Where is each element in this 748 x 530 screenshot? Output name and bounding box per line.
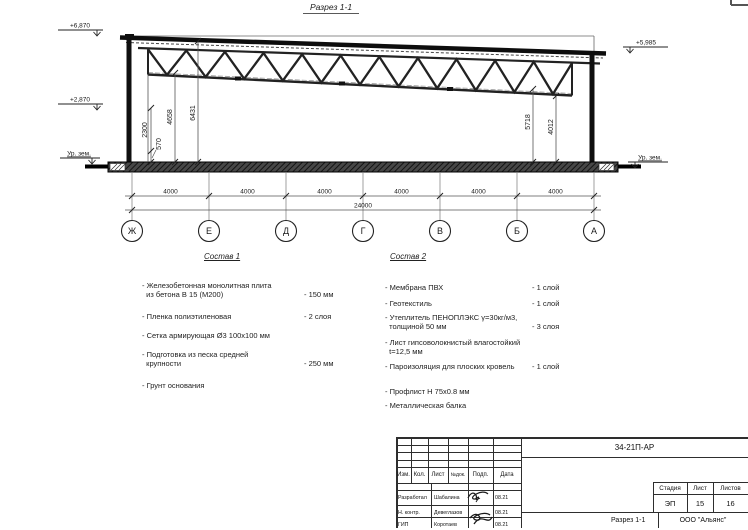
columns (125, 34, 595, 163)
svg-text:+2,870: +2,870 (70, 97, 90, 104)
elevation-left-top: +6,870 (58, 23, 103, 37)
tb-name: Девеглазов (434, 507, 467, 518)
list-item: - Сетка армирующая Ø3 100х100 мм (142, 331, 360, 340)
composition-1-title: Состав 1 (204, 252, 240, 262)
tb-name: Шабалина (434, 492, 467, 503)
tb-col-kol: Кол. (411, 468, 428, 482)
tb-role: ГИП (398, 519, 431, 530)
tb-col-podp: Подп. (468, 468, 493, 482)
elevation-ground-left: Ур. зем. (60, 151, 100, 165)
svg-text:4000: 4000 (394, 189, 409, 196)
tb-drawing-title: Разрез 1-1 (521, 513, 658, 528)
svg-text:2300: 2300 (142, 122, 149, 138)
list-item: - Геотекстиль - 1 слой (385, 299, 575, 308)
list-item: - Железобетонная монолитная плита из бет… (142, 281, 360, 299)
svg-text:Ур. зем.: Ур. зем. (638, 155, 662, 162)
roof-truss (138, 48, 600, 96)
tb-name: Коротаев (434, 519, 467, 530)
column-right (590, 55, 595, 163)
svg-text:6431: 6431 (190, 105, 197, 121)
svg-text:4012: 4012 (548, 119, 555, 135)
tb-date: 08.21 (495, 519, 520, 530)
tb-col-izm: Изм. (396, 468, 411, 482)
list-item: - Лист гипсоволокнистый влагостойкий t=1… (385, 338, 575, 356)
svg-text:А: А (591, 226, 597, 236)
svg-text:Ур. зем.: Ур. зем. (67, 151, 91, 158)
list-item: - Грунт основания (142, 381, 360, 390)
tb-role: Разработал (398, 492, 431, 503)
title-block: Изм. Кол. Лист №док. Подп. Дата Разработ… (396, 437, 748, 528)
section-drawing: Разрез 1-1 (0, 0, 748, 250)
svg-text:Г: Г (361, 226, 366, 236)
total-span-label: 24000 (354, 203, 372, 210)
frame-corner (731, 0, 748, 5)
svg-text:4000: 4000 (317, 189, 332, 196)
list-item: - Профлист Н 75х0.8 мм (385, 387, 575, 396)
svg-text:Д: Д (283, 226, 289, 236)
floor-slab (85, 162, 641, 172)
tb-col-list: Лист (428, 468, 448, 482)
vertical-dims-right: 5718 4012 (525, 86, 559, 165)
svg-text:+6,870: +6,870 (70, 23, 90, 30)
span-dimensions: 4000 4000 4000 4000 4000 4000 24000 (125, 173, 601, 220)
tb-date: 08.21 (495, 507, 520, 518)
tb-date: 08.21 (495, 492, 520, 503)
tb-role: Н. контр. (398, 507, 431, 518)
elevation-left-mid: +2,870 (58, 97, 103, 111)
tb-col-data: Дата (493, 468, 521, 482)
svg-text:+5,985: +5,985 (636, 40, 656, 47)
sheet-number: 15 (687, 495, 713, 511)
signature-scribbles (464, 484, 496, 528)
svg-text:4000: 4000 (163, 189, 178, 196)
svg-text:4000: 4000 (240, 189, 255, 196)
axis-bubbles: Ж Е Д Г В Б А (122, 221, 605, 242)
elevation-right-top: +5,985 (623, 40, 668, 54)
stage-value: ЭП (653, 495, 687, 511)
list-item: - Подготовка из песка средней крупности … (142, 350, 360, 368)
blueprint-page: { "page": { "section_title": "Разрез 1-1… (0, 0, 748, 528)
svg-text:570: 570 (156, 138, 163, 150)
sheet-label: Лист (687, 483, 713, 494)
column-left (127, 36, 132, 163)
svg-text:4658: 4658 (167, 109, 174, 125)
tb-col-ndok: №док. (448, 468, 468, 482)
list-item: - Мембрана ПВХ - 1 слой (385, 283, 575, 292)
section-title: Разрез 1-1 (310, 2, 352, 12)
list-item: - Пленка полиэтиленовая - 2 слоя (142, 312, 360, 321)
sheets-total: 16 (713, 495, 748, 511)
svg-text:Е: Е (206, 226, 212, 236)
svg-text:5718: 5718 (525, 114, 532, 130)
composition-2-title: Состав 2 (390, 252, 426, 262)
svg-text:4000: 4000 (548, 189, 563, 196)
svg-text:4000: 4000 (471, 189, 486, 196)
svg-text:В: В (437, 226, 443, 236)
stage-label: Стадия (653, 483, 687, 494)
list-item: - Утеплитель ПЕНОПЛЭКС γ=30кг/м3, толщин… (385, 313, 575, 331)
doc-number: 34-21П-АР (521, 439, 748, 455)
company-name: ООО "Альянс" (658, 513, 748, 528)
list-item: - Пароизоляция для плоских кровель - 1 с… (385, 362, 575, 371)
svg-text:Ж: Ж (128, 226, 137, 236)
sheets-label: Листов (713, 483, 748, 494)
list-item: - Металлическая балка (385, 401, 575, 410)
svg-text:Б: Б (514, 226, 520, 236)
